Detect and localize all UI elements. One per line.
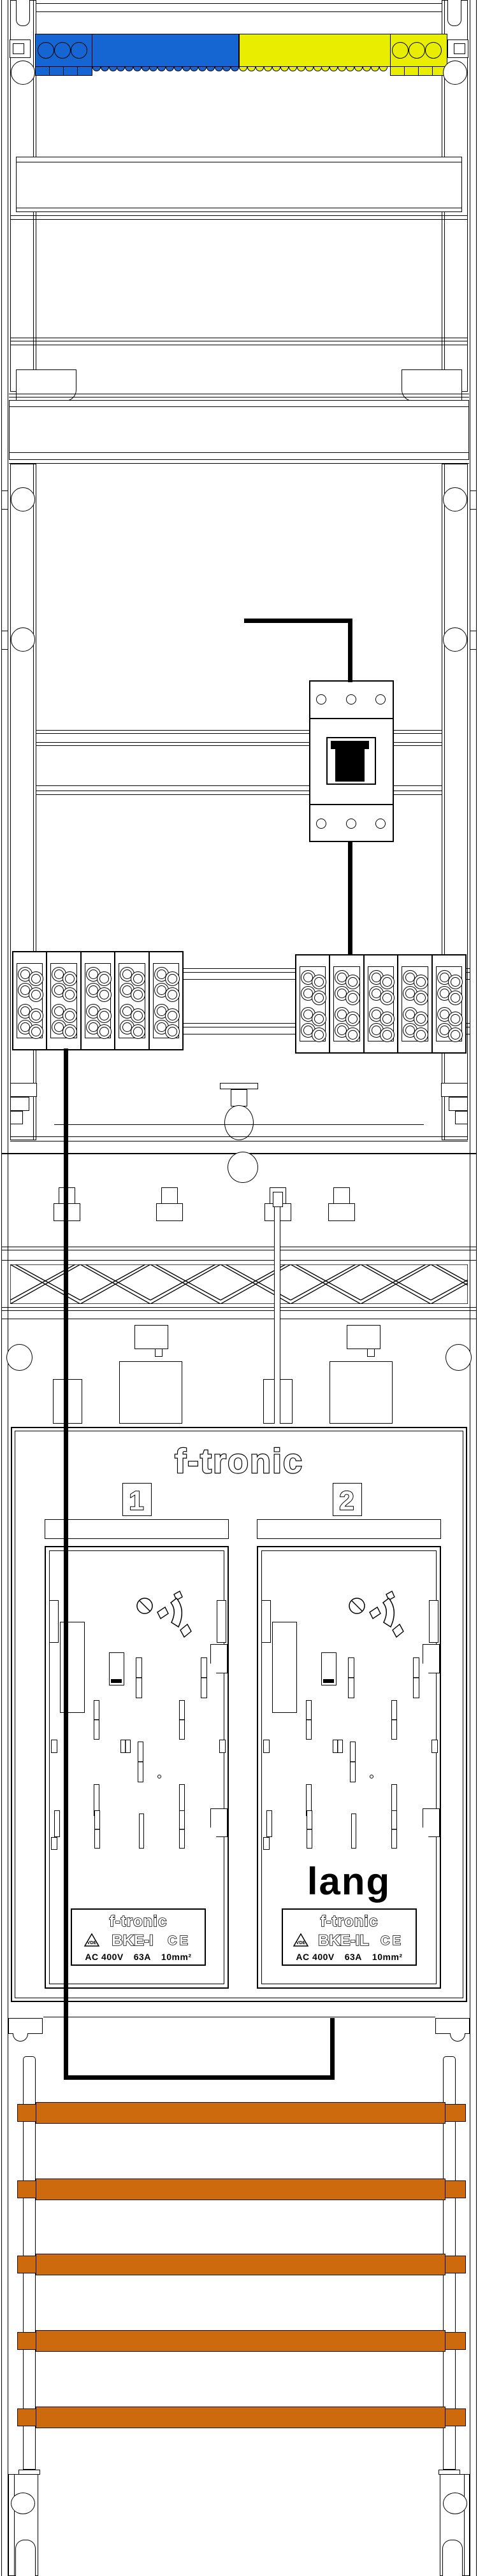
profile-hole <box>11 2493 35 2514</box>
terminal-bore <box>29 987 43 1002</box>
field-slot <box>391 1810 397 1849</box>
terminal-column-face <box>17 963 43 1038</box>
field-slot <box>413 1657 419 1698</box>
rating-plate-1: f-tronic VDE BKE-I CE AC 400V 63A 10mm² <box>71 1908 206 1966</box>
phase-busbar-stub-right <box>444 2256 466 2273</box>
rating-voltage: AC 400V <box>85 1952 123 1962</box>
field-slot <box>263 1740 270 1753</box>
neutral-terminal-bore <box>38 42 54 59</box>
supply-wire-horizontal <box>244 619 352 623</box>
plate-ratings: AC 400V 63A 10mm² <box>296 1952 402 1962</box>
plate-model-text: BKE-I <box>112 1932 153 1949</box>
phase-busbar <box>36 2102 445 2124</box>
terminal-column <box>432 955 466 1053</box>
terminal-bore <box>29 1008 43 1023</box>
mounting-channel-mid <box>9 400 469 460</box>
lower-left-bracket-notch <box>13 2033 28 2042</box>
edge-clip <box>470 490 477 510</box>
plate-model: BKE-IL <box>314 1932 373 1949</box>
terminal-column <box>398 955 431 1053</box>
lattice-edge-line <box>1 1307 477 1308</box>
meter-feed-wire-bottom <box>64 2075 335 2080</box>
phase-busbar-stub-left <box>17 2104 37 2122</box>
pe-terminal-bore <box>425 42 442 59</box>
meter-feed-wire-riser <box>330 2018 335 2080</box>
terminal-block-group-right <box>295 954 467 1054</box>
field-slot <box>179 1700 185 1740</box>
terminal-bore <box>380 975 395 989</box>
cross-brace-lattice <box>10 1264 468 1304</box>
field-slot <box>307 1810 312 1849</box>
terminal-column-face <box>436 966 462 1041</box>
edge-clip <box>470 631 477 650</box>
rail-hole <box>11 61 35 85</box>
right-step-bracket <box>449 1097 468 1111</box>
meter-feed-wire-vertical <box>64 1048 68 2080</box>
field-slot <box>201 1657 207 1698</box>
terminal-column <box>13 952 47 1050</box>
switch-terminal-divider <box>309 718 394 719</box>
lower-right-bracket <box>435 2018 470 2034</box>
field-slot <box>210 1808 228 1837</box>
ce-mark: CE <box>378 1933 406 1948</box>
terminal-bore <box>29 971 43 986</box>
side-oval-cutout <box>445 1344 472 1371</box>
switch-terminal-screw <box>346 694 356 705</box>
terminal-column-face <box>153 963 179 1038</box>
meter-field-1: f-tronic VDE BKE-I CE AC 400V 63A 10mm² <box>45 1546 229 1989</box>
field-pin-hole <box>157 1775 161 1778</box>
profile-hole <box>443 2493 467 2514</box>
terminal-bore <box>131 1008 145 1023</box>
lattice-edge-line <box>1 1247 477 1247</box>
field-slot <box>351 1814 356 1849</box>
terminal-column <box>81 952 115 1050</box>
divider <box>432 66 433 76</box>
field-slot <box>136 1657 142 1698</box>
switch-toggle-handle <box>331 741 369 749</box>
support-rail-line <box>10 338 468 338</box>
top-bracket <box>347 1325 380 1349</box>
plate-brand-logo: f-tronic <box>308 1913 391 1929</box>
phase-busbar-stub-left <box>17 2408 37 2426</box>
terminal-column <box>296 955 330 1053</box>
channel-line <box>16 162 462 162</box>
field-slot <box>49 1600 59 1643</box>
switch-toggle-handle <box>335 749 365 782</box>
terminal-block-group-left <box>12 951 184 1050</box>
top-rim-line <box>36 3 442 4</box>
vde-logo: VDE <box>293 1933 309 1948</box>
cable-clamp <box>328 1203 355 1221</box>
lower-left-bracket <box>8 2018 43 2034</box>
vde-text: VDE <box>296 1941 306 1945</box>
field-2-note: lang <box>258 1863 440 1901</box>
terminal-bore <box>62 1024 77 1039</box>
terminal-column-face <box>333 966 359 1041</box>
left-rail-fork-cutout <box>16 0 30 26</box>
terminal-column-face <box>50 963 76 1038</box>
terminal-bore <box>312 1012 326 1026</box>
rating-current: 63A <box>134 1952 151 1962</box>
clamped-wire-cross-section <box>273 1192 283 1207</box>
field-slot <box>51 1740 57 1753</box>
cabinet-edge-line <box>476 0 477 2576</box>
field-slot <box>306 1700 312 1740</box>
profile-slot <box>442 2540 463 2576</box>
ce-text: CE <box>380 1934 403 1948</box>
phase-busbar <box>36 2254 445 2275</box>
field-slot <box>219 1740 226 1753</box>
neutral-terminal-bore <box>54 42 71 59</box>
right-busbar-clip-inner <box>454 43 465 54</box>
top-bracket <box>134 1325 168 1349</box>
position-badge-2: 2 <box>333 1483 362 1516</box>
field-slot <box>138 1742 143 1782</box>
tray-line <box>10 1141 468 1141</box>
phase-busbar <box>36 2179 445 2200</box>
support-rail-line <box>10 345 468 345</box>
terminal-column-face <box>402 966 428 1041</box>
divider <box>418 66 419 76</box>
terminal-bore <box>448 975 463 989</box>
phase-busbar-stub-right <box>444 2104 466 2122</box>
supply-wire-to-switch <box>348 619 352 682</box>
divider <box>63 66 64 76</box>
meter-field-1-top-band <box>45 1519 229 1539</box>
rail-hole <box>443 627 467 652</box>
terminal-bore <box>97 1008 112 1023</box>
terminal-bore <box>312 1027 326 1042</box>
plate-ratings: AC 400V 63A 10mm² <box>85 1952 191 1962</box>
phase-busbar <box>36 2407 445 2428</box>
switch-terminal-screw <box>316 819 326 829</box>
position-badge-2-number: 2 <box>333 1484 361 1515</box>
terminal-bore <box>414 1027 428 1042</box>
center-pedestal-oval <box>224 1105 254 1140</box>
plate-brand-text: f-tronic <box>110 1913 168 1929</box>
lattice-edge-line <box>1 1319 477 1319</box>
channel-line <box>9 397 469 397</box>
terminal-bore <box>97 1024 112 1039</box>
field-slot <box>94 1700 99 1740</box>
switch-to-terminal-wire <box>348 842 352 955</box>
field-pin-hole <box>370 1775 373 1778</box>
field-slot <box>261 1600 271 1643</box>
terminal-bore <box>131 971 145 986</box>
plate-model: BKE-I <box>105 1932 160 1949</box>
control-wire <box>274 1207 280 1424</box>
terminal-column <box>149 952 183 1050</box>
terminal-bore <box>62 987 77 1002</box>
profile-slot <box>15 2540 36 2576</box>
mounting-block <box>330 1361 393 1424</box>
left-step-bracket <box>10 1111 23 1124</box>
switch-terminal-divider <box>309 804 394 805</box>
right-step-bracket <box>441 1083 468 1097</box>
center-pedestal-stem <box>231 1089 247 1106</box>
cabinet-edge-line <box>8 0 8 2576</box>
terminal-bore <box>414 975 428 989</box>
field-slot <box>217 1600 226 1643</box>
terminal-column <box>47 952 80 1050</box>
terminal-bore <box>345 1012 360 1026</box>
switch-terminal-screw <box>375 694 386 705</box>
field-slot <box>120 1740 131 1753</box>
phase-busbar-stub-left <box>17 2180 37 2198</box>
pe-terminal-bore <box>392 42 409 59</box>
terminal-bore <box>414 1012 428 1026</box>
field-slot <box>431 1740 438 1753</box>
center-pedestal-plate <box>220 1083 258 1089</box>
panel-brand-logo: f-tronic <box>92 1438 386 1482</box>
top-rim-line <box>36 11 442 12</box>
terminal-bore <box>448 1027 463 1042</box>
field-slot <box>429 1600 438 1643</box>
divider <box>77 66 78 76</box>
position-badge-1-number: 1 <box>123 1484 150 1515</box>
switch-terminal-screw <box>375 819 386 829</box>
terminal-bore <box>29 1024 43 1039</box>
panel-oval-cutout <box>228 1152 258 1183</box>
terminal-bore <box>448 991 463 1005</box>
support-rail-line <box>10 341 468 341</box>
field-slot <box>263 1837 270 1850</box>
top-bracket-foot <box>155 1349 163 1357</box>
neutral-block-feet <box>35 66 92 76</box>
field-slot <box>139 1814 144 1849</box>
field-slot <box>350 1742 356 1782</box>
terminal-column-face <box>85 963 111 1038</box>
cable-clamp <box>161 1187 178 1204</box>
terminal-bore <box>131 987 145 1002</box>
field-slot <box>54 1810 60 1837</box>
cabinet-edge-line <box>1 0 2 2576</box>
field-slot <box>51 1837 57 1850</box>
ce-text: CE <box>168 1934 191 1948</box>
left-step-bracket <box>10 1083 37 1097</box>
rating-cross-section: 10mm² <box>161 1952 192 1962</box>
position-badge-1: 1 <box>122 1483 152 1516</box>
channel-line <box>9 452 469 453</box>
rating-voltage: AC 400V <box>296 1952 334 1962</box>
terminal-bore <box>312 991 326 1005</box>
rail-hole <box>11 627 35 652</box>
terminal-column <box>330 955 363 1053</box>
edge-clip <box>1 631 8 650</box>
left-busbar-clip-inner <box>13 43 24 54</box>
switch-terminal-screw <box>346 819 356 829</box>
terminal-column <box>364 955 398 1053</box>
terminal-bore <box>165 1024 180 1039</box>
slot-contact <box>111 1679 122 1683</box>
terminal-bore <box>165 971 180 986</box>
terminal-column-face <box>368 966 394 1041</box>
terminal-bore <box>380 1027 395 1042</box>
terminal-bore <box>62 1008 77 1023</box>
badge-number-text: 1 <box>129 1485 143 1515</box>
phase-busbar <box>36 2330 445 2352</box>
phase-busbar-stub-right <box>444 2180 466 2198</box>
field-slot <box>391 1700 397 1740</box>
terminal-column-face <box>119 963 145 1038</box>
channel-line <box>10 219 468 220</box>
terminal-bore <box>345 975 360 989</box>
terminal-bore <box>131 1024 145 1039</box>
channel-line <box>9 463 469 464</box>
field-slot <box>109 1652 124 1685</box>
rail-hole <box>443 61 467 85</box>
profile-inner-line <box>464 2474 465 2576</box>
meter-cabinet-drawing: f-tronic 1 2 f-tronic VDE BKE <box>0 0 478 2576</box>
lower-tray-line <box>43 2017 435 2017</box>
terminal-bore <box>97 971 112 986</box>
terminal-bore <box>448 1012 463 1026</box>
lattice-edge-line <box>1 1260 477 1261</box>
field-slot <box>266 1810 272 1837</box>
edge-clip <box>1 490 8 510</box>
terminal-bore <box>380 991 395 1005</box>
neutral-terminal-bore <box>71 42 87 59</box>
side-oval-cutout <box>6 1344 33 1371</box>
rating-cross-section: 10mm² <box>372 1952 403 1962</box>
lattice-edge-line <box>1 1310 477 1311</box>
mounting-block <box>119 1361 182 1424</box>
divider <box>49 66 50 76</box>
cabinet-edge-line <box>470 0 470 2576</box>
vde-text: VDE <box>87 1941 97 1945</box>
field-slot <box>210 1644 228 1673</box>
field-slot <box>423 1644 440 1673</box>
channel-line <box>9 406 469 407</box>
channel-line <box>10 215 468 216</box>
plate-model-text: BKE-IL <box>318 1932 369 1949</box>
slot-contact <box>323 1679 334 1683</box>
field-slot <box>272 1622 297 1713</box>
field-slot <box>333 1740 343 1753</box>
field-slot <box>348 1657 354 1698</box>
terminal-column-face <box>300 966 326 1041</box>
divider <box>404 66 405 76</box>
plate-brand-text: f-tronic <box>321 1913 379 1929</box>
right-step-bracket <box>455 1111 468 1124</box>
field-slot <box>423 1808 440 1837</box>
plate-brand-logo: f-tronic <box>97 1913 180 1929</box>
lower-right-bracket-notch <box>450 2033 465 2042</box>
top-bracket-foot <box>367 1349 375 1357</box>
phase-busbar-stub-left <box>17 2256 37 2273</box>
channel-line <box>16 208 462 208</box>
terminal-bore <box>165 1008 180 1023</box>
terminal-bore <box>414 991 428 1005</box>
rail-hole <box>443 487 467 512</box>
terminal-bore <box>62 971 77 986</box>
right-rail-fork-cutout <box>447 0 461 26</box>
mounting-channel-upper <box>16 157 462 212</box>
meter-field-2-top-band <box>257 1519 441 1539</box>
cable-clamp <box>156 1203 183 1221</box>
profile-inner-line <box>14 2474 15 2576</box>
terminal-column <box>115 952 148 1050</box>
phase-busbar-stub-left <box>17 2332 37 2350</box>
ce-mark: CE <box>165 1933 193 1948</box>
terminal-bore <box>97 987 112 1002</box>
meter-field-2: lang f-tronic VDE BKE-IL CE AC 400V 63A <box>257 1546 441 1989</box>
pe-terminal-bore <box>409 42 425 59</box>
seal-screw-and-lever-icon <box>132 1591 202 1657</box>
pe-block-feet <box>390 66 447 76</box>
left-step-bracket <box>10 1097 29 1111</box>
rail-hole <box>11 487 35 512</box>
terminal-bore <box>312 975 326 989</box>
terminal-bore <box>165 987 180 1002</box>
badge-number-text: 2 <box>339 1485 354 1515</box>
channel-line <box>9 394 469 394</box>
terminal-bore <box>380 1012 395 1026</box>
tray-line <box>10 1136 468 1137</box>
rating-plate-2: f-tronic VDE BKE-IL CE AC 400V 63A 10mm² <box>282 1908 417 1966</box>
switch-terminal-screw <box>316 694 326 705</box>
terminal-bore <box>345 991 360 1005</box>
lattice-edge-line <box>1 1250 477 1250</box>
field-slot <box>321 1652 337 1685</box>
field-slot <box>179 1810 185 1849</box>
seal-screw-and-lever-icon <box>344 1591 414 1657</box>
terminal-bore <box>345 1027 360 1042</box>
tray-line <box>54 1124 424 1125</box>
phase-busbar-stub-right <box>444 2332 466 2350</box>
field-slot <box>94 1810 100 1849</box>
rating-current: 63A <box>345 1952 362 1962</box>
cable-clamp <box>333 1187 350 1204</box>
panel-brand-text: f-tronic <box>175 1442 303 1480</box>
phase-busbar-stub-right <box>444 2408 466 2426</box>
vde-logo: VDE <box>83 1933 100 1948</box>
